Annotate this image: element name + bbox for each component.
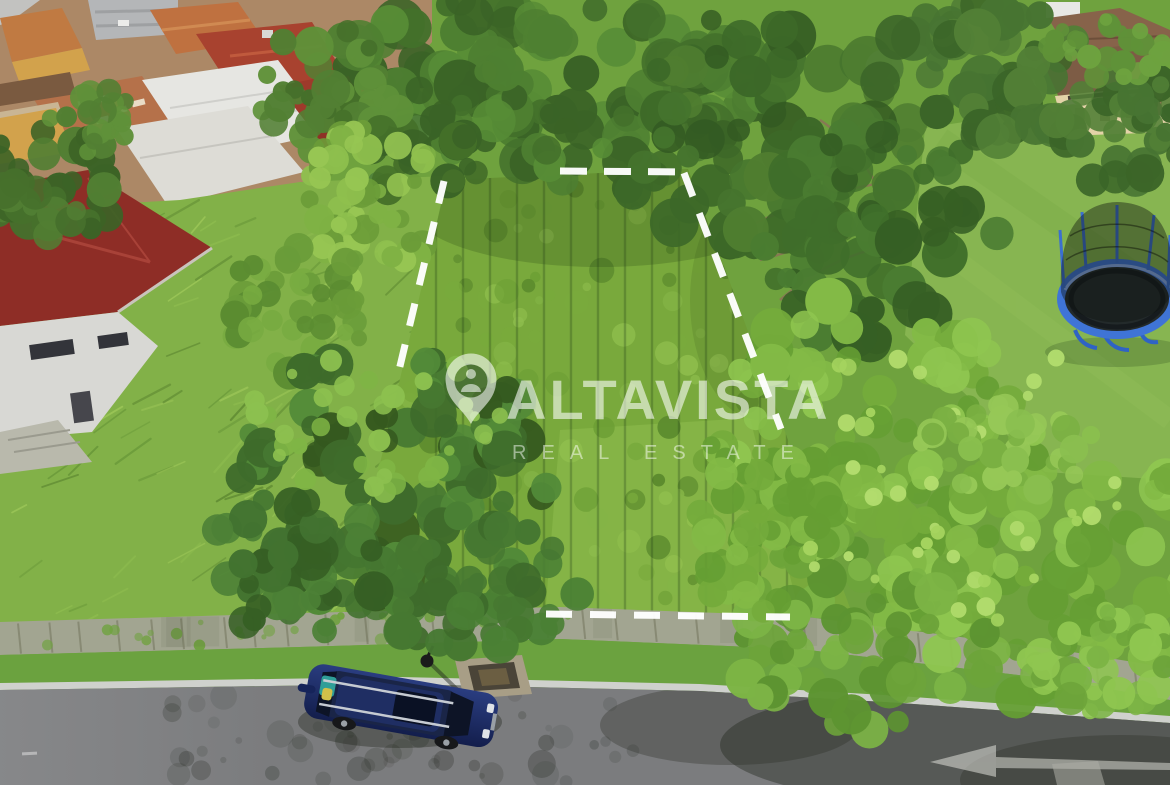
watermark-brand: ALTAVISTA bbox=[506, 368, 831, 431]
watermark-tagline: REAL ESTATE bbox=[512, 442, 809, 464]
aerial-photo: ALTAVISTA REAL ESTATE bbox=[0, 0, 1170, 785]
trampoline bbox=[1060, 202, 1170, 350]
